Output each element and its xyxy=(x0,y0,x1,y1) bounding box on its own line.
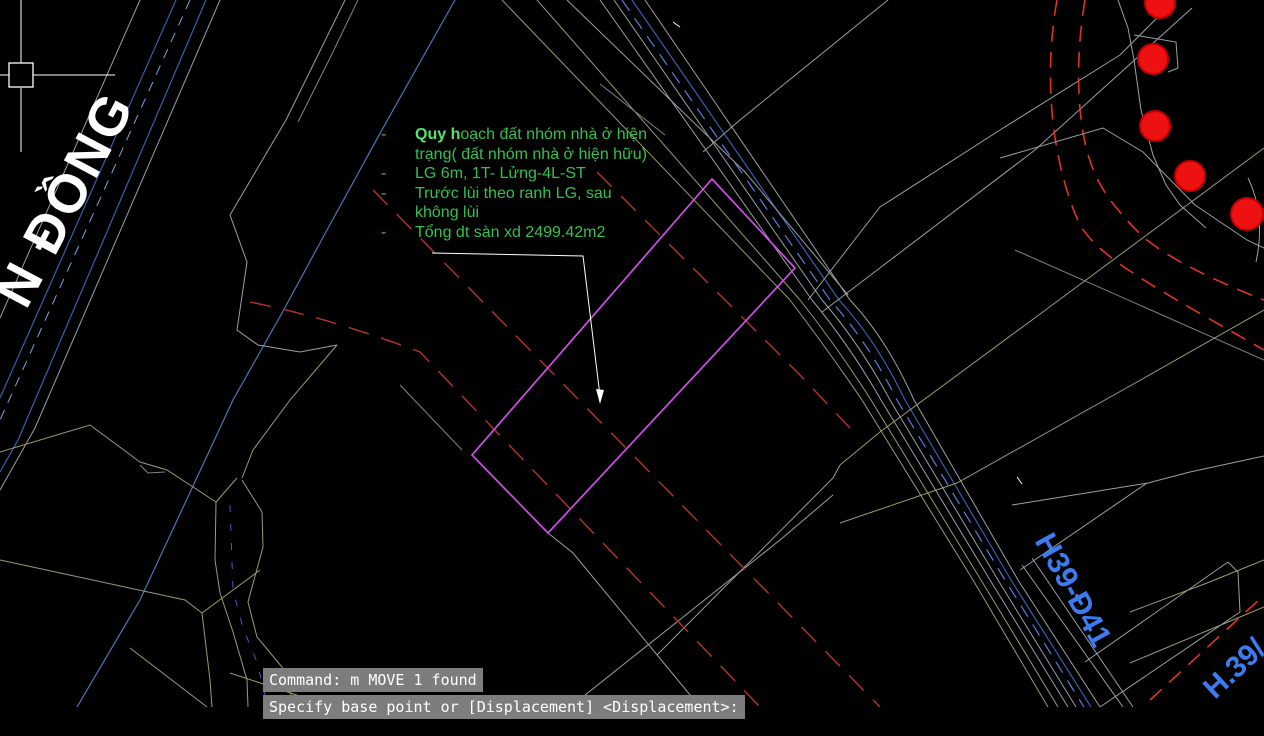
annotation-line: -Trước lùi theo ranh LG, sau xyxy=(381,184,647,204)
bullet-dash: - xyxy=(381,164,386,184)
command-history-line[interactable]: Command: m MOVE 1 found xyxy=(263,668,483,692)
autocad-viewport: { "annotation": { "bullet": "-", "lines"… xyxy=(0,0,1264,707)
annotation-line: không lùi xyxy=(381,203,647,223)
parcel-lines-topright xyxy=(1000,0,1264,262)
pickbox xyxy=(9,63,33,87)
bullet-dash: - xyxy=(381,223,386,243)
command-prompt-line[interactable]: Specify base point or [Displacement] <Di… xyxy=(263,695,745,719)
planning-annotation: -Quy hoạch đất nhóm nhà ở hiện trạng( đấ… xyxy=(381,125,647,242)
leader-arrowhead xyxy=(596,389,604,404)
point-marks xyxy=(673,22,1022,484)
bullet-dash: - xyxy=(381,125,386,145)
parcel-lines-right xyxy=(600,0,1264,523)
bullet-dash: - xyxy=(381,184,386,204)
alley-khaki xyxy=(0,425,333,707)
annotation-line: trạng( đất nhóm nhà ở hiện hữu) xyxy=(381,145,647,165)
annotation-line: -Tổng dt sàn xd 2499.42m2 xyxy=(381,223,647,243)
annotation-line: -LG 6m, 1T- Lửng-4L-ST xyxy=(381,164,647,184)
annotation-bold-text: Quy h xyxy=(415,126,460,143)
annotation-line: -Quy hoạch đất nhóm nhà ở hiện xyxy=(381,125,647,145)
parcel-boundary-left xyxy=(230,0,358,478)
parcel-lines-bottom xyxy=(400,385,840,707)
